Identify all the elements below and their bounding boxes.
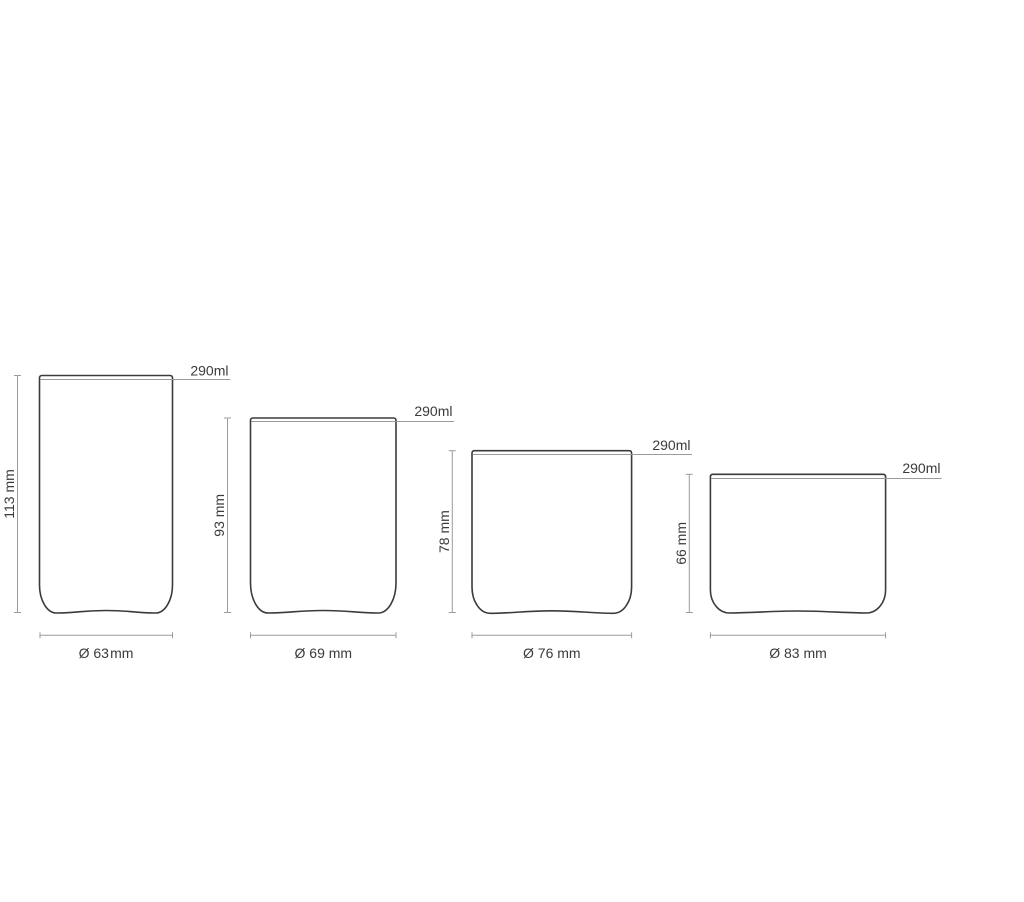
svg-text:290ml: 290ml — [414, 403, 452, 419]
svg-text:Ø 63 mm: Ø 63 mm — [79, 645, 134, 661]
svg-text:290ml: 290ml — [190, 362, 228, 378]
svg-text:Ø 76 mm: Ø 76 mm — [523, 645, 581, 661]
svg-text:93 mm: 93 mm — [211, 494, 227, 537]
svg-text:290ml: 290ml — [902, 460, 940, 476]
svg-text:290ml: 290ml — [652, 437, 690, 453]
svg-text:78 mm: 78 mm — [436, 510, 452, 553]
svg-text:113 mm: 113 mm — [1, 469, 17, 519]
svg-text:66 mm: 66 mm — [673, 522, 689, 565]
svg-text:Ø 83 mm: Ø 83 mm — [769, 645, 827, 661]
svg-text:Ø 69 mm: Ø 69 mm — [295, 645, 353, 661]
